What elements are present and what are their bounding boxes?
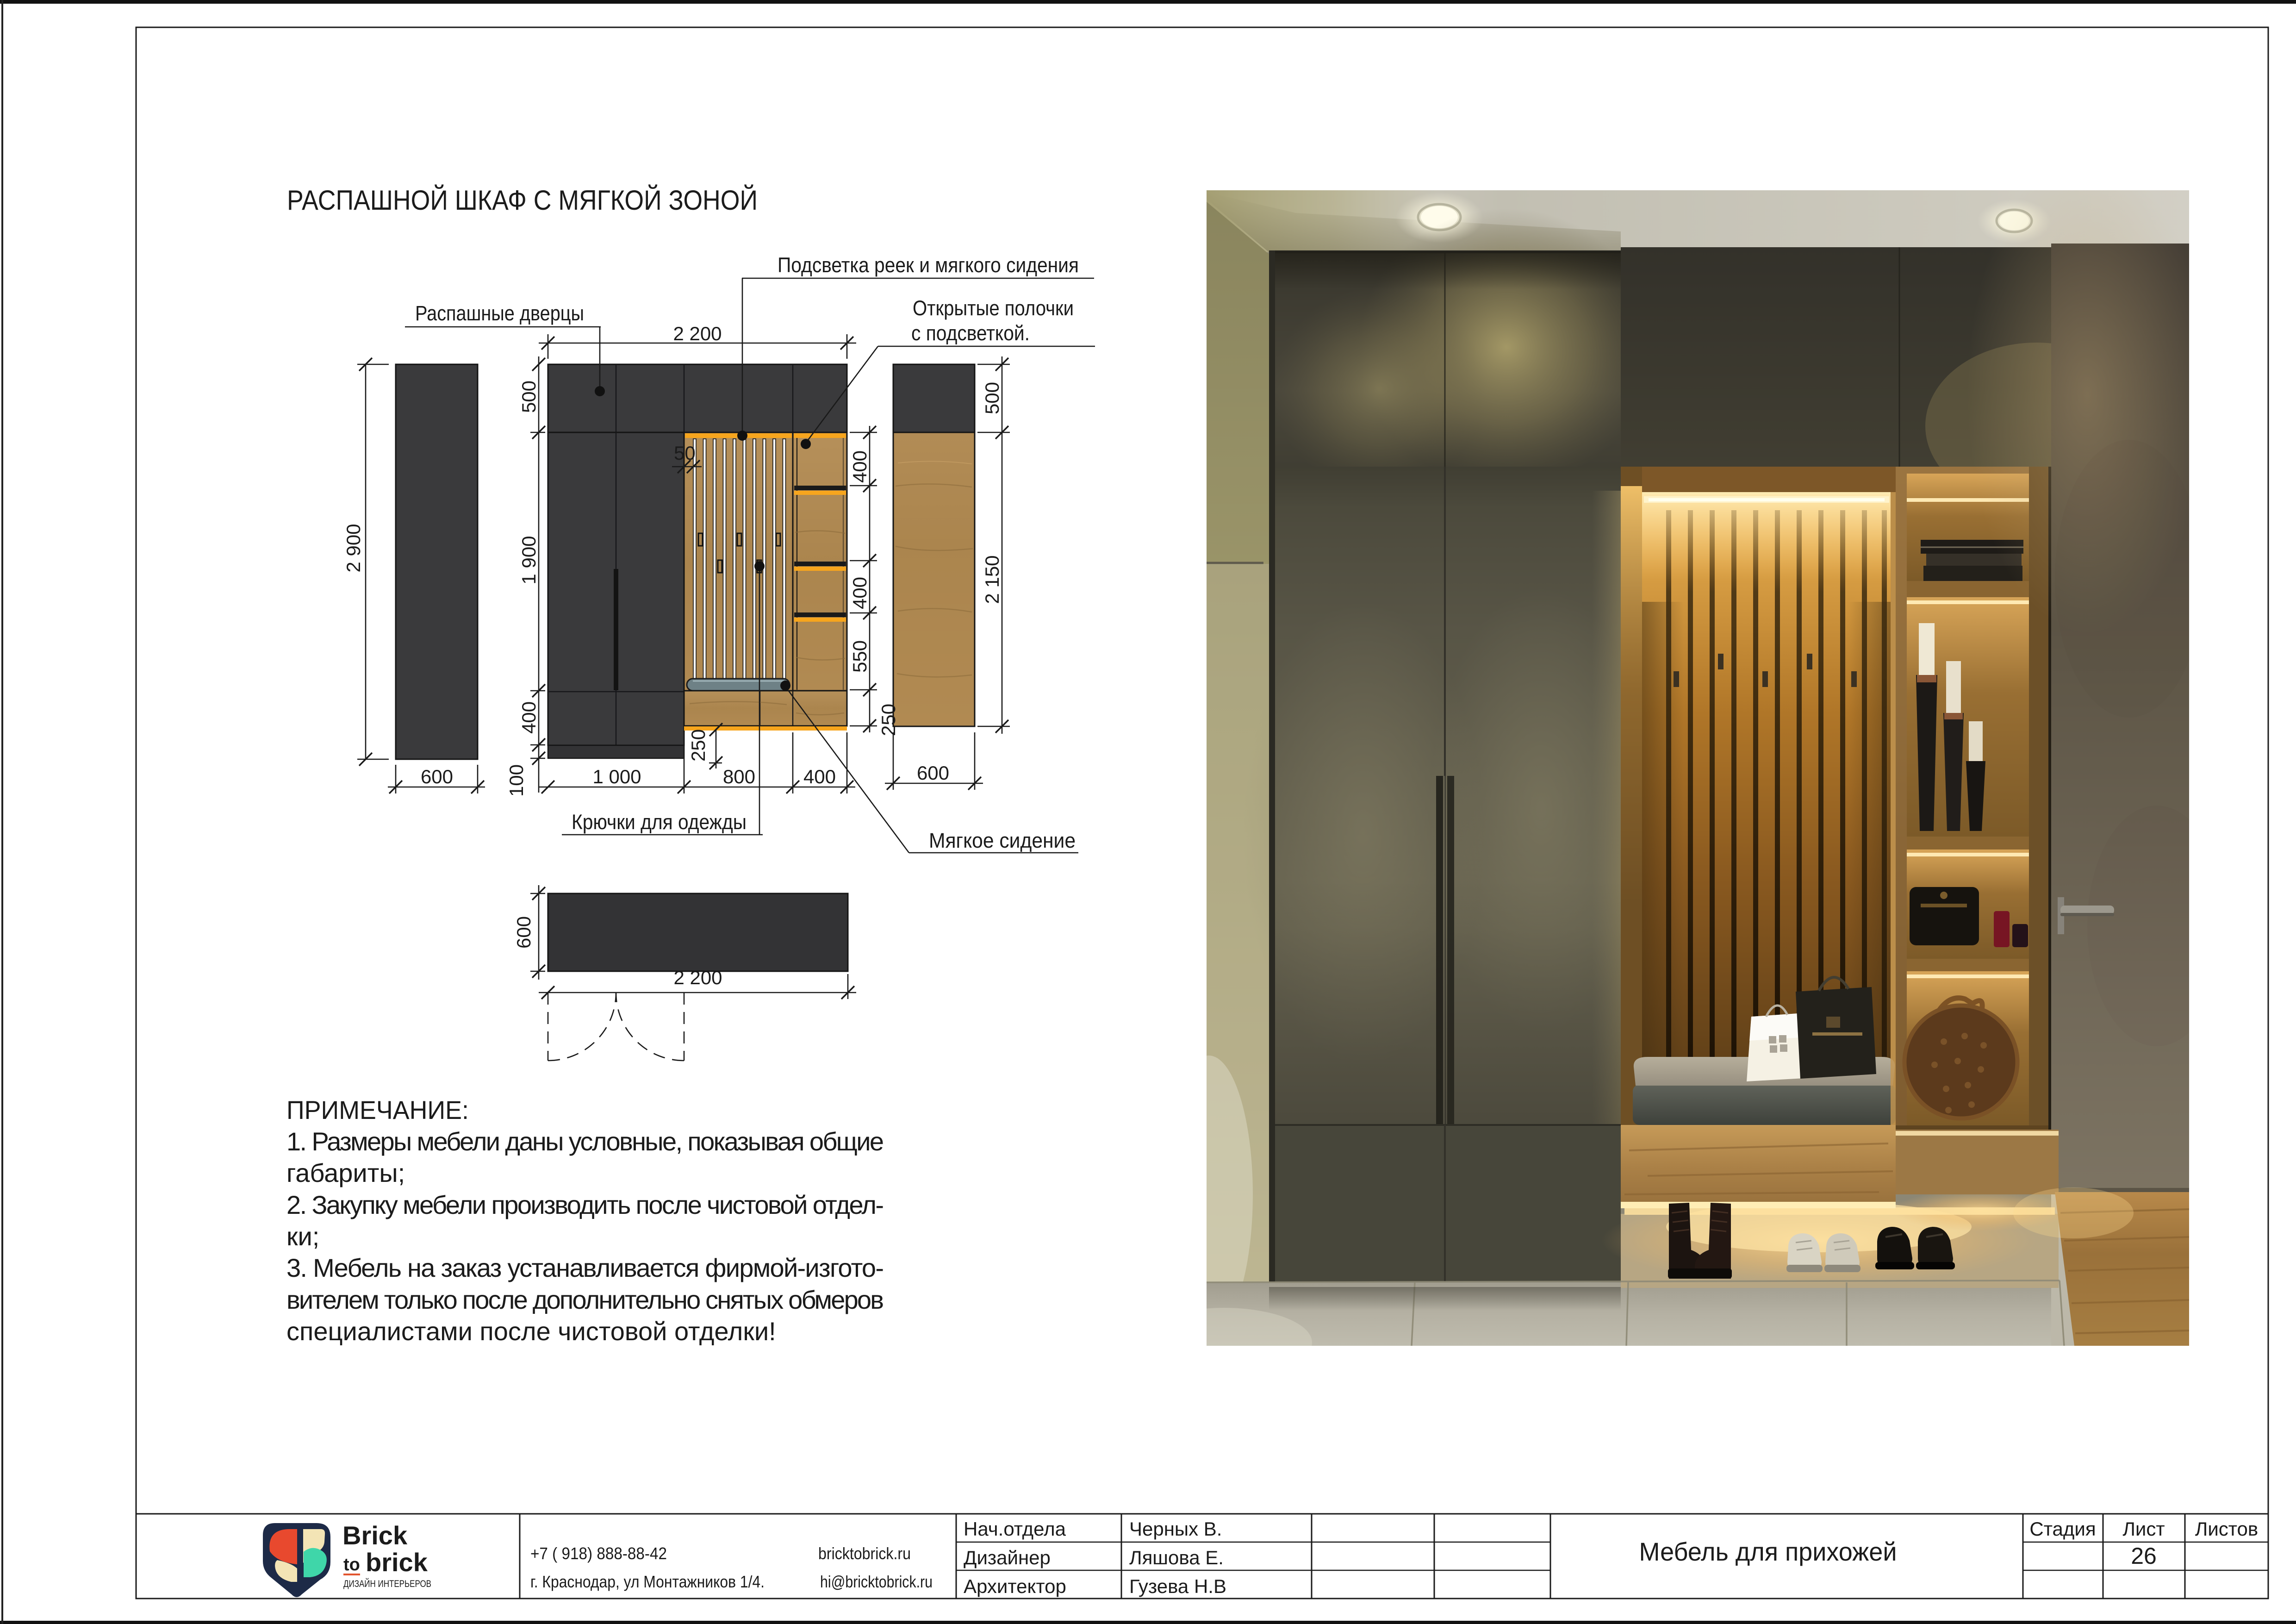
- svg-text:600: 600: [421, 766, 453, 787]
- svg-text:550: 550: [849, 640, 871, 673]
- svg-text:Лист: Лист: [2122, 1518, 2165, 1540]
- svg-text:2. Закупку мебели производить: 2. Закупку мебели производить после чист…: [286, 1190, 884, 1219]
- svg-text:to: to: [343, 1555, 360, 1574]
- svg-text:500: 500: [981, 382, 1003, 414]
- svg-text:600: 600: [917, 762, 949, 784]
- svg-text:hi@bricktobrick.ru: hi@bricktobrick.ru: [820, 1572, 933, 1591]
- svg-text:26: 26: [2131, 1543, 2157, 1569]
- svg-text:250: 250: [687, 729, 709, 762]
- svg-text:Ляшова Е.: Ляшова Е.: [1129, 1547, 1224, 1568]
- svg-text:2 900: 2 900: [342, 524, 364, 572]
- svg-text:ДИЗАЙН ИНТЕРЬЕРОВ: ДИЗАЙН ИНТЕРЬЕРОВ: [343, 1578, 431, 1589]
- svg-text:Открытые полочки: Открытые полочки: [913, 296, 1074, 320]
- svg-text:1. Размеры мебели даны условны: 1. Размеры мебели даны условные, показыв…: [286, 1127, 884, 1156]
- svg-text:1 000: 1 000: [592, 766, 641, 787]
- svg-text:Нач.отдела: Нач.отдела: [964, 1518, 1066, 1540]
- svg-text:г. Краснодар, ул Монтажников: г. Краснодар, ул Монтажников 1/4.: [530, 1572, 765, 1591]
- svg-text:250: 250: [877, 704, 899, 736]
- svg-text:ПРИМЕЧАНИЕ:: ПРИМЕЧАНИЕ:: [286, 1095, 469, 1124]
- svg-text:2 200: 2 200: [673, 323, 722, 344]
- svg-text:600: 600: [513, 916, 535, 949]
- svg-text:Подсветка реек и мягкого сиде: Подсветка реек и мягкого сидения: [778, 253, 1079, 277]
- svg-text:Brick: Brick: [342, 1521, 408, 1550]
- svg-text:brick: brick: [366, 1548, 428, 1577]
- svg-text:bricktobrick.ru: bricktobrick.ru: [818, 1544, 911, 1563]
- svg-text:вителем только после дополните: вителем только после дополнительно сняты…: [286, 1285, 884, 1314]
- svg-text:Дизайнер: Дизайнер: [964, 1547, 1051, 1568]
- svg-text:400: 400: [518, 701, 540, 734]
- svg-text:Стадия: Стадия: [2029, 1518, 2096, 1540]
- svg-text:Крючки для одежды: Крючки для одежды: [572, 810, 747, 834]
- svg-text:с подсветкой.: с подсветкой.: [911, 321, 1030, 345]
- svg-text:специалистами после чистовой о: специалистами после чистовой отделки!: [286, 1317, 776, 1346]
- svg-text:Архитектор: Архитектор: [964, 1575, 1066, 1597]
- svg-text:Распашные дверцы: Распашные дверцы: [415, 301, 584, 325]
- svg-text:габариты;: габариты;: [286, 1158, 405, 1187]
- svg-text:+7 ( 918) 888-88-42: +7 ( 918) 888-88-42: [530, 1544, 667, 1563]
- svg-text:РАСПАШНОЙ ШКАФ С МЯГКОЙ ЗОНОЙ: РАСПАШНОЙ ШКАФ С МЯГКОЙ ЗОНОЙ: [287, 185, 758, 216]
- svg-text:Листов: Листов: [2195, 1518, 2258, 1540]
- svg-text:100: 100: [505, 764, 527, 797]
- svg-text:400: 400: [849, 577, 871, 609]
- svg-text:ки;: ки;: [286, 1222, 319, 1251]
- svg-text:2 200: 2 200: [673, 967, 722, 988]
- svg-text:3. Мебель на заказ устанавлива: 3. Мебель на заказ устанавливается фирмо…: [286, 1253, 884, 1282]
- svg-text:Гузева Н.В: Гузева Н.В: [1129, 1575, 1226, 1597]
- svg-text:800: 800: [723, 766, 755, 787]
- svg-text:Мягкое сидение: Мягкое сидение: [929, 829, 1076, 852]
- svg-text:400: 400: [803, 766, 836, 787]
- svg-text:50: 50: [674, 442, 696, 464]
- svg-text:400: 400: [849, 450, 871, 483]
- svg-text:Мебель для прихожей: Мебель для прихожей: [1639, 1537, 1897, 1566]
- svg-text:1 900: 1 900: [518, 536, 540, 584]
- svg-text:Черных В.: Черных В.: [1129, 1518, 1222, 1540]
- svg-text:500: 500: [518, 381, 540, 413]
- svg-text:2 150: 2 150: [981, 555, 1003, 604]
